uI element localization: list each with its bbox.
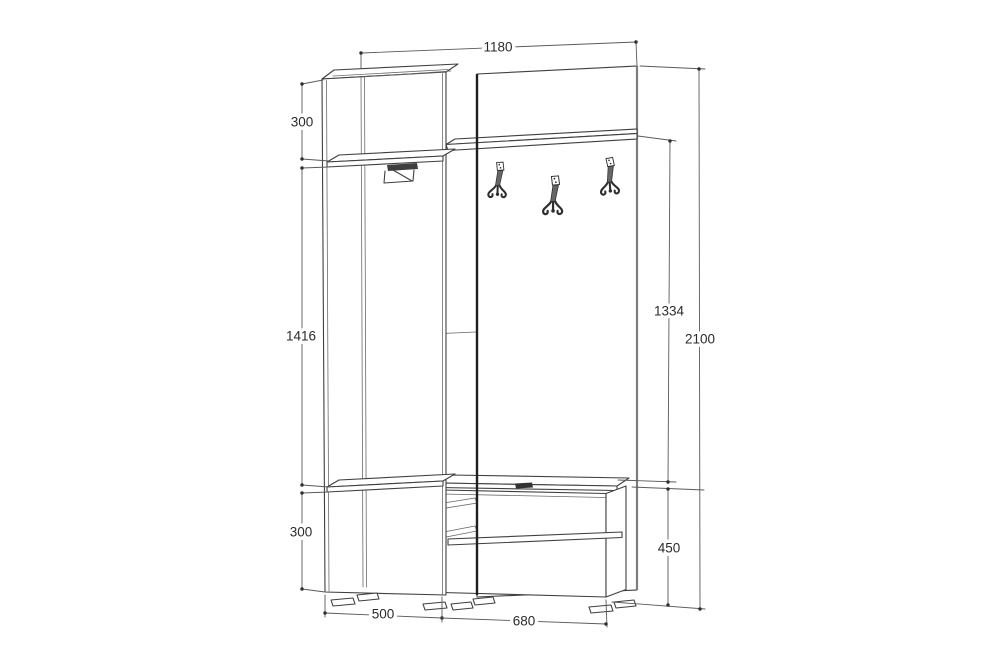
dim-label-shelf-to-bench: 1334 xyxy=(654,304,685,319)
shoe-bench xyxy=(439,475,629,597)
dim-label-bottom-section: 300 xyxy=(290,525,313,540)
bench-handle xyxy=(515,483,533,489)
dim-total-width: 1180 xyxy=(359,40,637,69)
wardrobe-cabinet xyxy=(322,64,458,595)
dim-label-cabinet-width: 500 xyxy=(372,607,395,622)
dim-total-height: 2100 xyxy=(640,66,715,611)
dim-bottom-section: 300 xyxy=(290,491,329,592)
dim-label-bench-width: 680 xyxy=(513,614,536,629)
technical-drawing-svg: 1180 300 1416 300 500 680 xyxy=(0,0,1000,667)
drawing-canvas: 1180 300 1416 300 500 680 xyxy=(0,0,1000,667)
dim-label-total-height: 2100 xyxy=(685,332,715,347)
dim-label-total-width: 1180 xyxy=(483,40,512,55)
dim-label-middle-section: 1416 xyxy=(286,329,316,344)
dim-label-bench-height: 450 xyxy=(658,541,681,556)
dim-label-top-section: 300 xyxy=(291,115,314,130)
